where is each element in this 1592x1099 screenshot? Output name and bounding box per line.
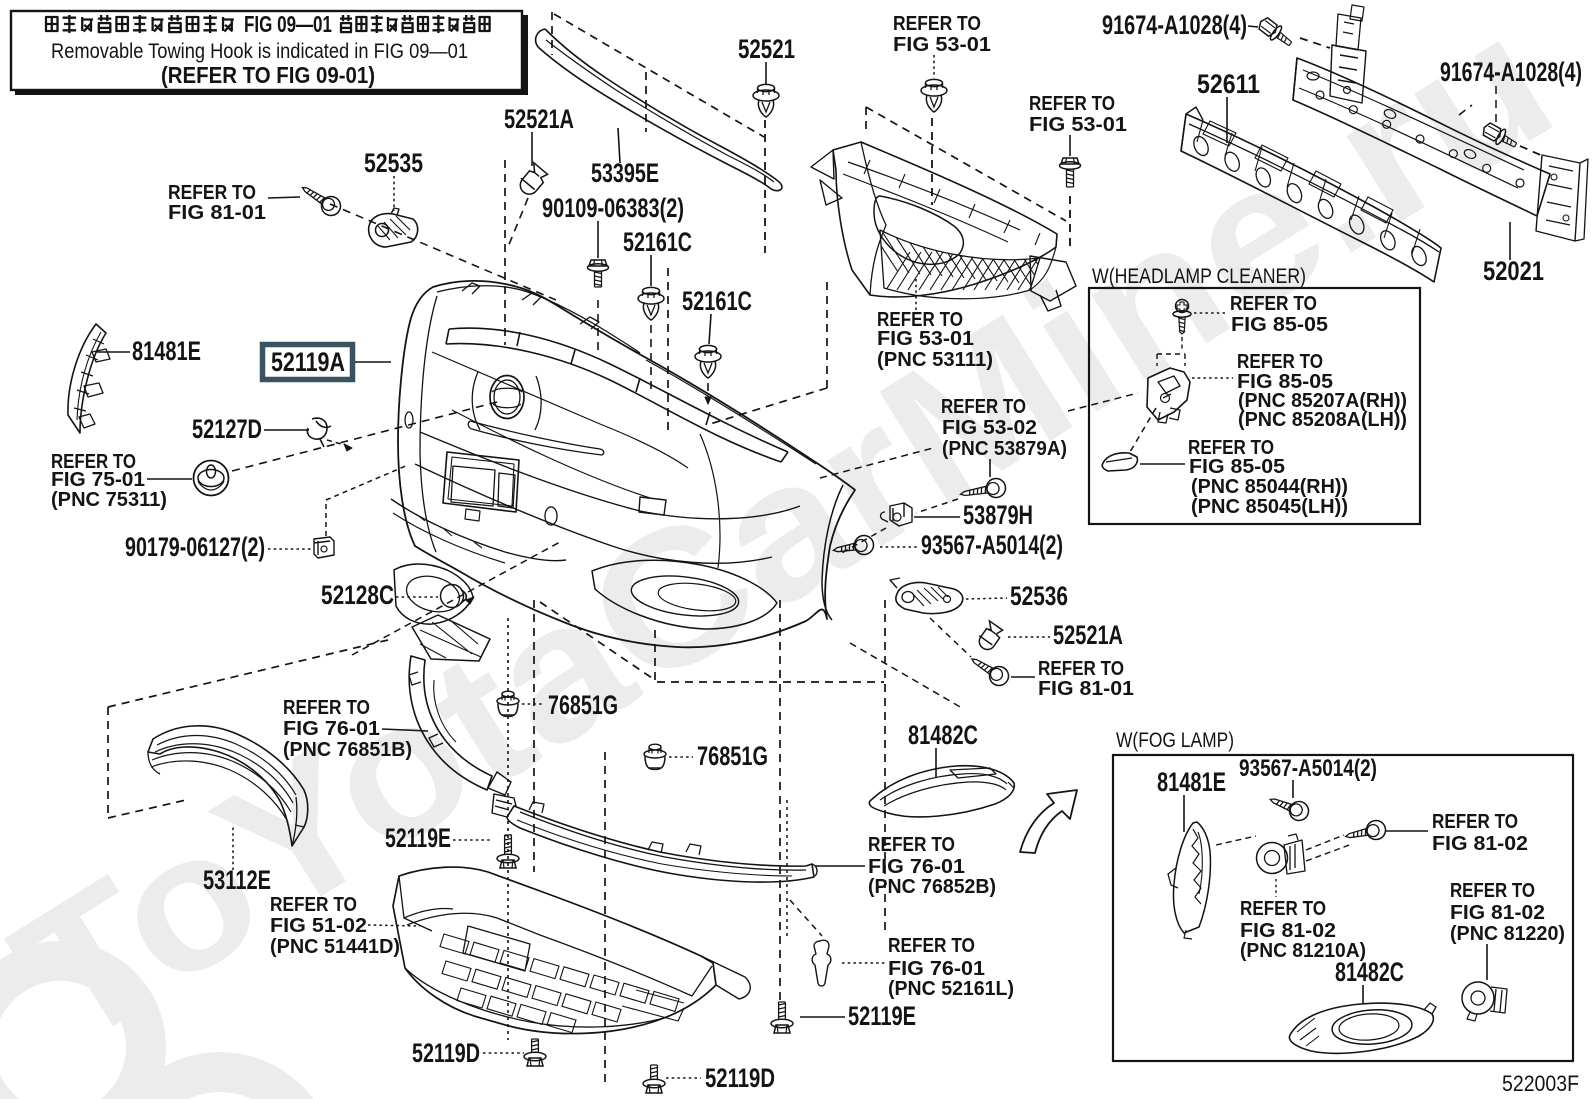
svg-text:W(FOG LAMP): W(FOG LAMP) bbox=[1116, 729, 1234, 752]
svg-text:REFER TO: REFER TO bbox=[1230, 292, 1317, 315]
svg-text:90109-06383(2): 90109-06383(2) bbox=[542, 193, 684, 223]
svg-text:52535: 52535 bbox=[364, 148, 423, 178]
svg-text:FIG 53-01: FIG 53-01 bbox=[877, 327, 974, 350]
svg-text:REFER TO: REFER TO bbox=[1432, 810, 1518, 833]
svg-text:52119A: 52119A bbox=[271, 347, 345, 377]
svg-text:(PNC 75311): (PNC 75311) bbox=[51, 488, 167, 511]
svg-text:FIG 76-01: FIG 76-01 bbox=[283, 717, 380, 740]
svg-text:REFER TO: REFER TO bbox=[888, 934, 975, 957]
svg-text:FIG 81-02: FIG 81-02 bbox=[1432, 832, 1528, 855]
svg-text:(PNC 51441D): (PNC 51441D) bbox=[270, 935, 400, 958]
svg-text:52119D: 52119D bbox=[705, 1063, 775, 1093]
svg-text:93567-A5014(2): 93567-A5014(2) bbox=[921, 530, 1063, 560]
svg-text:FIG 81-02: FIG 81-02 bbox=[1450, 901, 1545, 924]
svg-text:W(HEADLAMP CLEANER): W(HEADLAMP CLEANER) bbox=[1092, 265, 1306, 288]
svg-text:52521A: 52521A bbox=[1053, 620, 1123, 650]
svg-text:FIG 85-05: FIG 85-05 bbox=[1231, 313, 1328, 336]
svg-text:93567-A5014(2): 93567-A5014(2) bbox=[1239, 755, 1377, 782]
svg-text:REFER TO: REFER TO bbox=[270, 893, 357, 916]
svg-text:52021: 52021 bbox=[1483, 256, 1544, 286]
svg-text:REFER TO: REFER TO bbox=[893, 12, 981, 35]
svg-text:53112E: 53112E bbox=[203, 865, 271, 895]
svg-text:52119E: 52119E bbox=[385, 823, 451, 853]
svg-text:81481E: 81481E bbox=[1157, 767, 1226, 797]
svg-text:(PNC 53879A): (PNC 53879A) bbox=[942, 437, 1067, 460]
svg-text:REFER TO: REFER TO bbox=[1029, 92, 1115, 115]
svg-text:FIG 81-01: FIG 81-01 bbox=[168, 201, 266, 224]
svg-text:(PNC 76851B): (PNC 76851B) bbox=[283, 738, 412, 761]
svg-text:(PNC 76852B): (PNC 76852B) bbox=[868, 875, 996, 898]
svg-text:52536: 52536 bbox=[1010, 581, 1068, 611]
svg-text:(PNC 53111): (PNC 53111) bbox=[877, 348, 993, 371]
svg-text:81482C: 81482C bbox=[1335, 957, 1404, 987]
svg-text:90179-06127(2): 90179-06127(2) bbox=[125, 532, 265, 562]
svg-text:REFER TO: REFER TO bbox=[1240, 897, 1326, 920]
svg-text:76851G: 76851G bbox=[697, 741, 768, 771]
svg-text:52119E: 52119E bbox=[848, 1001, 916, 1031]
svg-text:52521A: 52521A bbox=[504, 104, 574, 134]
svg-text:52127D: 52127D bbox=[192, 414, 262, 444]
svg-text:81481E: 81481E bbox=[132, 336, 201, 366]
svg-text:52161C: 52161C bbox=[682, 286, 752, 316]
svg-text:53395E: 53395E bbox=[591, 158, 659, 188]
svg-text:(REFER TO FIG 09-01): (REFER TO FIG 09-01) bbox=[161, 62, 375, 88]
svg-text:52161C: 52161C bbox=[623, 227, 692, 257]
svg-text:REFER TO: REFER TO bbox=[1450, 879, 1535, 902]
svg-text:(PNC 81220): (PNC 81220) bbox=[1450, 922, 1565, 945]
svg-text:81482C: 81482C bbox=[908, 720, 978, 750]
svg-text:FIG 09—01: FIG 09—01 bbox=[244, 11, 332, 37]
svg-text:(PNC 52161L): (PNC 52161L) bbox=[888, 977, 1014, 1000]
svg-text:FIG 53-02: FIG 53-02 bbox=[942, 416, 1037, 439]
svg-text:(PNC 85208A(LH)): (PNC 85208A(LH)) bbox=[1238, 408, 1407, 431]
svg-text:52611: 52611 bbox=[1197, 69, 1260, 99]
svg-text:FIG 53-01: FIG 53-01 bbox=[893, 33, 991, 56]
svg-text:52521: 52521 bbox=[738, 34, 795, 64]
svg-text:91674-A1028(4): 91674-A1028(4) bbox=[1102, 10, 1247, 40]
svg-text:FIG 53-01: FIG 53-01 bbox=[1029, 113, 1127, 136]
svg-text:REFER TO: REFER TO bbox=[941, 395, 1026, 418]
svg-text:522003F: 522003F bbox=[1502, 1071, 1579, 1096]
svg-text:FIG 51-02: FIG 51-02 bbox=[270, 914, 367, 937]
svg-text:76851G: 76851G bbox=[548, 690, 618, 720]
svg-text:52119D: 52119D bbox=[412, 1038, 480, 1068]
svg-text:(PNC 85045(LH)): (PNC 85045(LH)) bbox=[1191, 495, 1348, 518]
svg-text:FIG 81-01: FIG 81-01 bbox=[1038, 677, 1134, 700]
svg-text:REFER TO: REFER TO bbox=[283, 696, 370, 719]
svg-text:REFER TO: REFER TO bbox=[868, 833, 955, 856]
svg-text:91674-A1028(4): 91674-A1028(4) bbox=[1440, 57, 1582, 87]
svg-text:52128C: 52128C bbox=[321, 580, 394, 610]
svg-text:Removable Towing Hook is indic: Removable Towing Hook is indicated in FI… bbox=[51, 39, 468, 63]
svg-text:53879H: 53879H bbox=[963, 500, 1033, 530]
